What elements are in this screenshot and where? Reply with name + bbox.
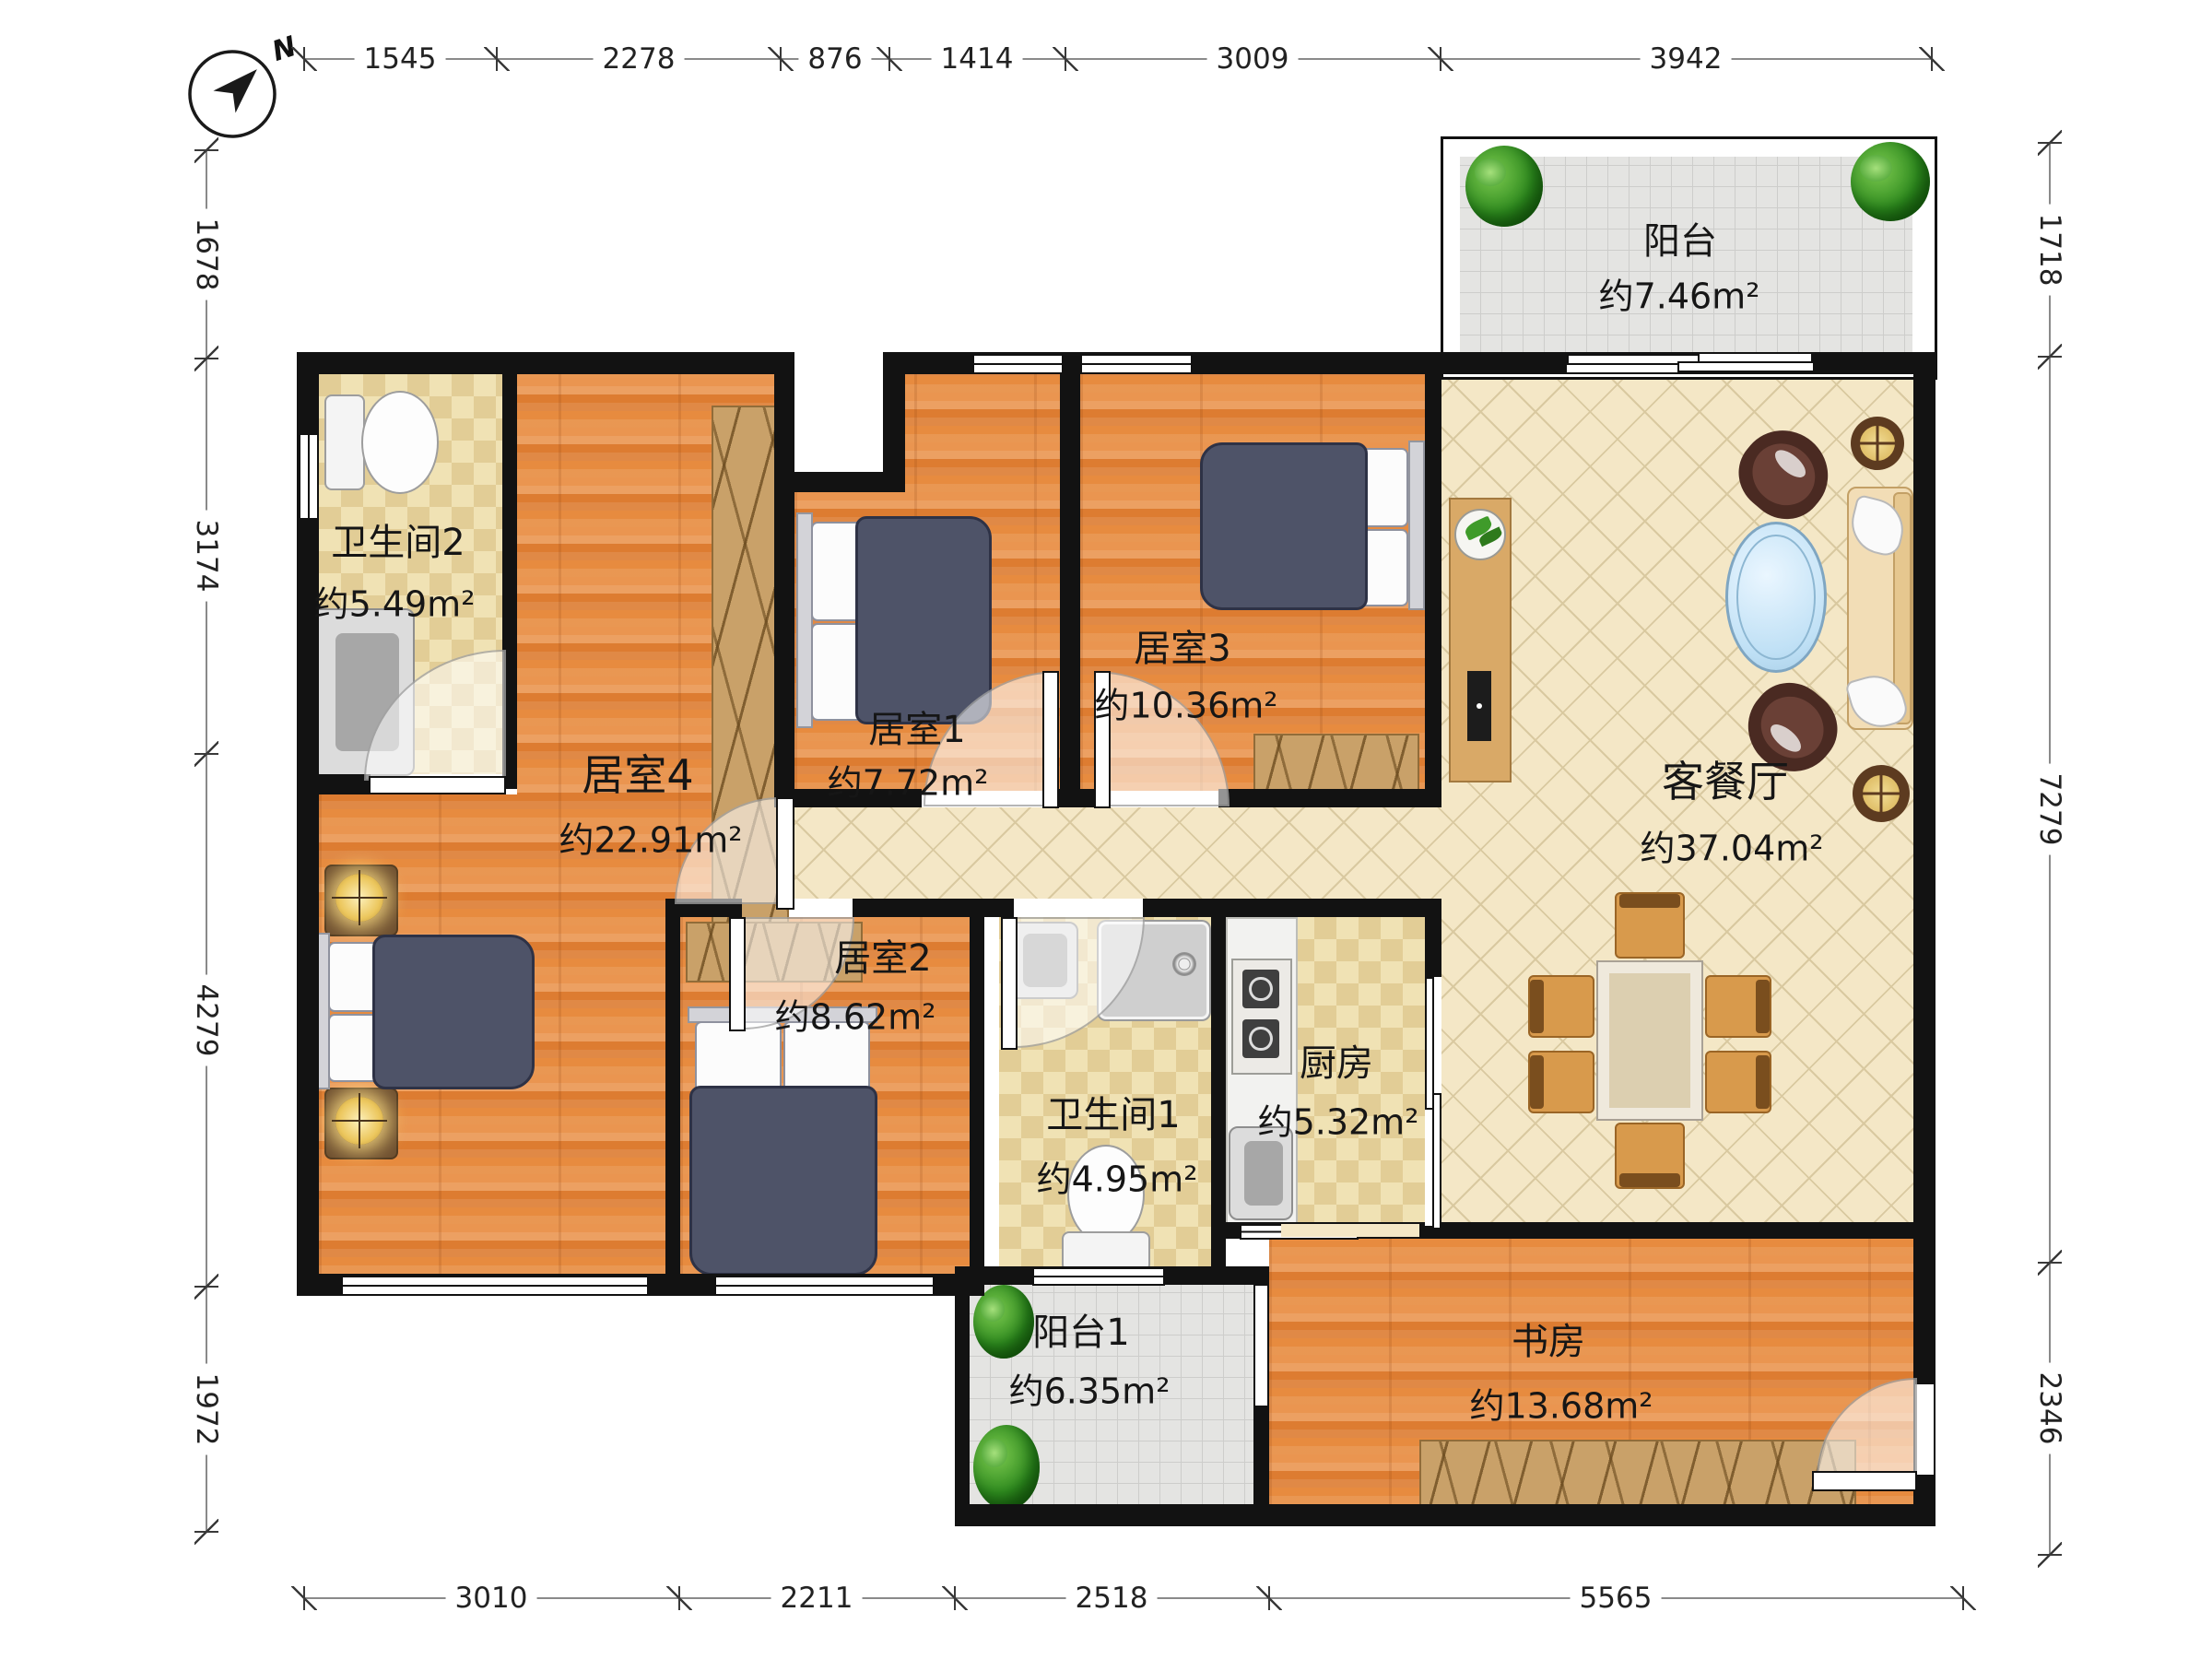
dining-chair [1528, 975, 1594, 1038]
room-name: 居室4 [582, 742, 693, 803]
lamp-icon [335, 1097, 383, 1145]
door-leaf [369, 776, 506, 794]
room-name: 居室1 [868, 700, 965, 753]
dim-label: 876 [798, 42, 871, 76]
dining-chair [1615, 1123, 1685, 1189]
window [341, 1276, 649, 1296]
dim-label: 3009 [1207, 42, 1299, 76]
room-area: 约7.46m² [1599, 268, 1760, 319]
wardrobe [1253, 734, 1419, 793]
dim-label: 1678 [190, 209, 223, 300]
dim-label: 3010 [446, 1582, 537, 1615]
plant-icon [973, 1425, 1040, 1510]
dim-tick [1268, 1586, 1270, 1610]
wall [297, 352, 794, 374]
room-area: 约5.49m² [314, 576, 476, 627]
dim-tick [2038, 356, 2062, 358]
dim-label: 7279 [2033, 764, 2066, 855]
wardrobe [1419, 1440, 1856, 1506]
dim-tick [194, 358, 218, 359]
window [1080, 354, 1193, 374]
wall [1218, 789, 1441, 807]
dim-label: 2211 [771, 1582, 863, 1615]
plant-icon [1851, 142, 1930, 221]
room-name: 居室2 [834, 928, 931, 982]
dim-tick [2038, 142, 2062, 144]
room-area: 约6.35m² [1009, 1363, 1171, 1414]
wall [297, 774, 371, 794]
room-area: 约5.32m² [1258, 1094, 1419, 1145]
dim-tick [678, 1586, 680, 1610]
wall [665, 917, 680, 1296]
room-name: 阳台1 [1032, 1302, 1129, 1356]
dining-chair [1615, 892, 1685, 959]
room-area: 约4.95m² [1037, 1151, 1198, 1202]
door-leaf [776, 797, 794, 910]
entry-doorway [1915, 1384, 1934, 1475]
dim-label: 3174 [190, 511, 223, 602]
stove [1231, 959, 1292, 1075]
dim-label: 4279 [190, 975, 223, 1066]
coffee-table [1725, 522, 1827, 673]
dim-label: 2346 [2033, 1363, 2066, 1454]
window [972, 354, 1064, 374]
lamp-icon [335, 874, 383, 922]
doorway [1255, 1286, 1267, 1406]
wall [853, 899, 1014, 917]
room-area: 约22.91m² [559, 812, 742, 863]
doorway [1281, 1224, 1419, 1237]
dim-label: 1414 [932, 42, 1023, 76]
room-area: 约13.68m² [1469, 1378, 1653, 1429]
entry-door-leaf [1812, 1471, 1917, 1491]
dining-chair [1528, 1051, 1594, 1113]
dining-chair [1705, 1051, 1771, 1113]
room-name: 阳台 [1643, 211, 1717, 265]
dim-label: 3942 [1641, 42, 1732, 76]
plant-icon [1465, 146, 1543, 227]
door-leaf [729, 917, 746, 1031]
plant-icon [973, 1285, 1034, 1359]
wall [1055, 789, 1094, 807]
dim-label: 2518 [1066, 1582, 1158, 1615]
tv [1467, 671, 1491, 741]
dim-tick [1440, 47, 1441, 71]
dim-tick [194, 1531, 218, 1533]
wall [774, 352, 794, 797]
wall [1425, 352, 1441, 807]
room-name: 客餐厅 [1662, 748, 1789, 809]
dining-table [1596, 960, 1703, 1121]
door-leaf [1042, 671, 1059, 808]
dim-tick [194, 1286, 218, 1288]
room-name: 卫生间1 [1046, 1085, 1180, 1138]
dim-tick [888, 47, 890, 71]
wall [1143, 899, 1441, 917]
room-name: 书房 [1512, 1312, 1585, 1365]
room-area: 约37.04m² [1640, 820, 1823, 871]
room-name: 厨房 [1300, 1033, 1373, 1087]
dim-tick [1962, 1586, 1964, 1610]
door-leaf [1001, 917, 1018, 1050]
dim-label: 1718 [2033, 205, 2066, 296]
balcony-sliding-door [1567, 354, 1811, 372]
dim-tick [1931, 47, 1933, 71]
dim-label: 2278 [594, 42, 685, 76]
wall [1060, 352, 1080, 789]
compass-icon [186, 44, 282, 140]
wall [955, 1266, 970, 1526]
room-area: 约8.62m² [775, 989, 936, 1040]
room-name: 居室3 [1134, 618, 1230, 672]
dim-tick [496, 47, 498, 71]
window [714, 1276, 935, 1296]
wall [970, 917, 984, 1296]
dim-label: 1972 [190, 1364, 223, 1455]
dim-label: 5565 [1571, 1582, 1662, 1615]
dim-label: 1545 [355, 42, 446, 76]
dim-tick [954, 1586, 956, 1610]
dim-tick [2038, 1554, 2062, 1556]
wall [955, 1504, 1932, 1526]
kitchen-sliding-door [1425, 977, 1441, 1226]
wall [1211, 917, 1226, 1281]
room-name: 卫生间2 [331, 512, 465, 566]
side-stool [1853, 765, 1910, 822]
window [1032, 1267, 1165, 1286]
dim-tick [194, 753, 218, 755]
dim-tick [303, 47, 305, 71]
floor-plan: 卫生间2 约5.49m² 居室4 约22.91m² 居室1 约7.72m² 居室… [0, 0, 2212, 1659]
dining-chair [1705, 975, 1771, 1038]
dim-tick [303, 1586, 305, 1610]
dim-tick [2038, 1262, 2062, 1264]
side-stool [1851, 417, 1904, 470]
window [299, 433, 319, 520]
room-area: 约7.72m² [828, 755, 989, 806]
plant-pot-icon [1454, 509, 1506, 560]
wall [1913, 352, 1935, 1526]
dim-tick [1065, 47, 1066, 71]
room-area: 约10.36m² [1094, 677, 1277, 728]
dim-tick [780, 47, 782, 71]
dim-tick [194, 149, 218, 151]
